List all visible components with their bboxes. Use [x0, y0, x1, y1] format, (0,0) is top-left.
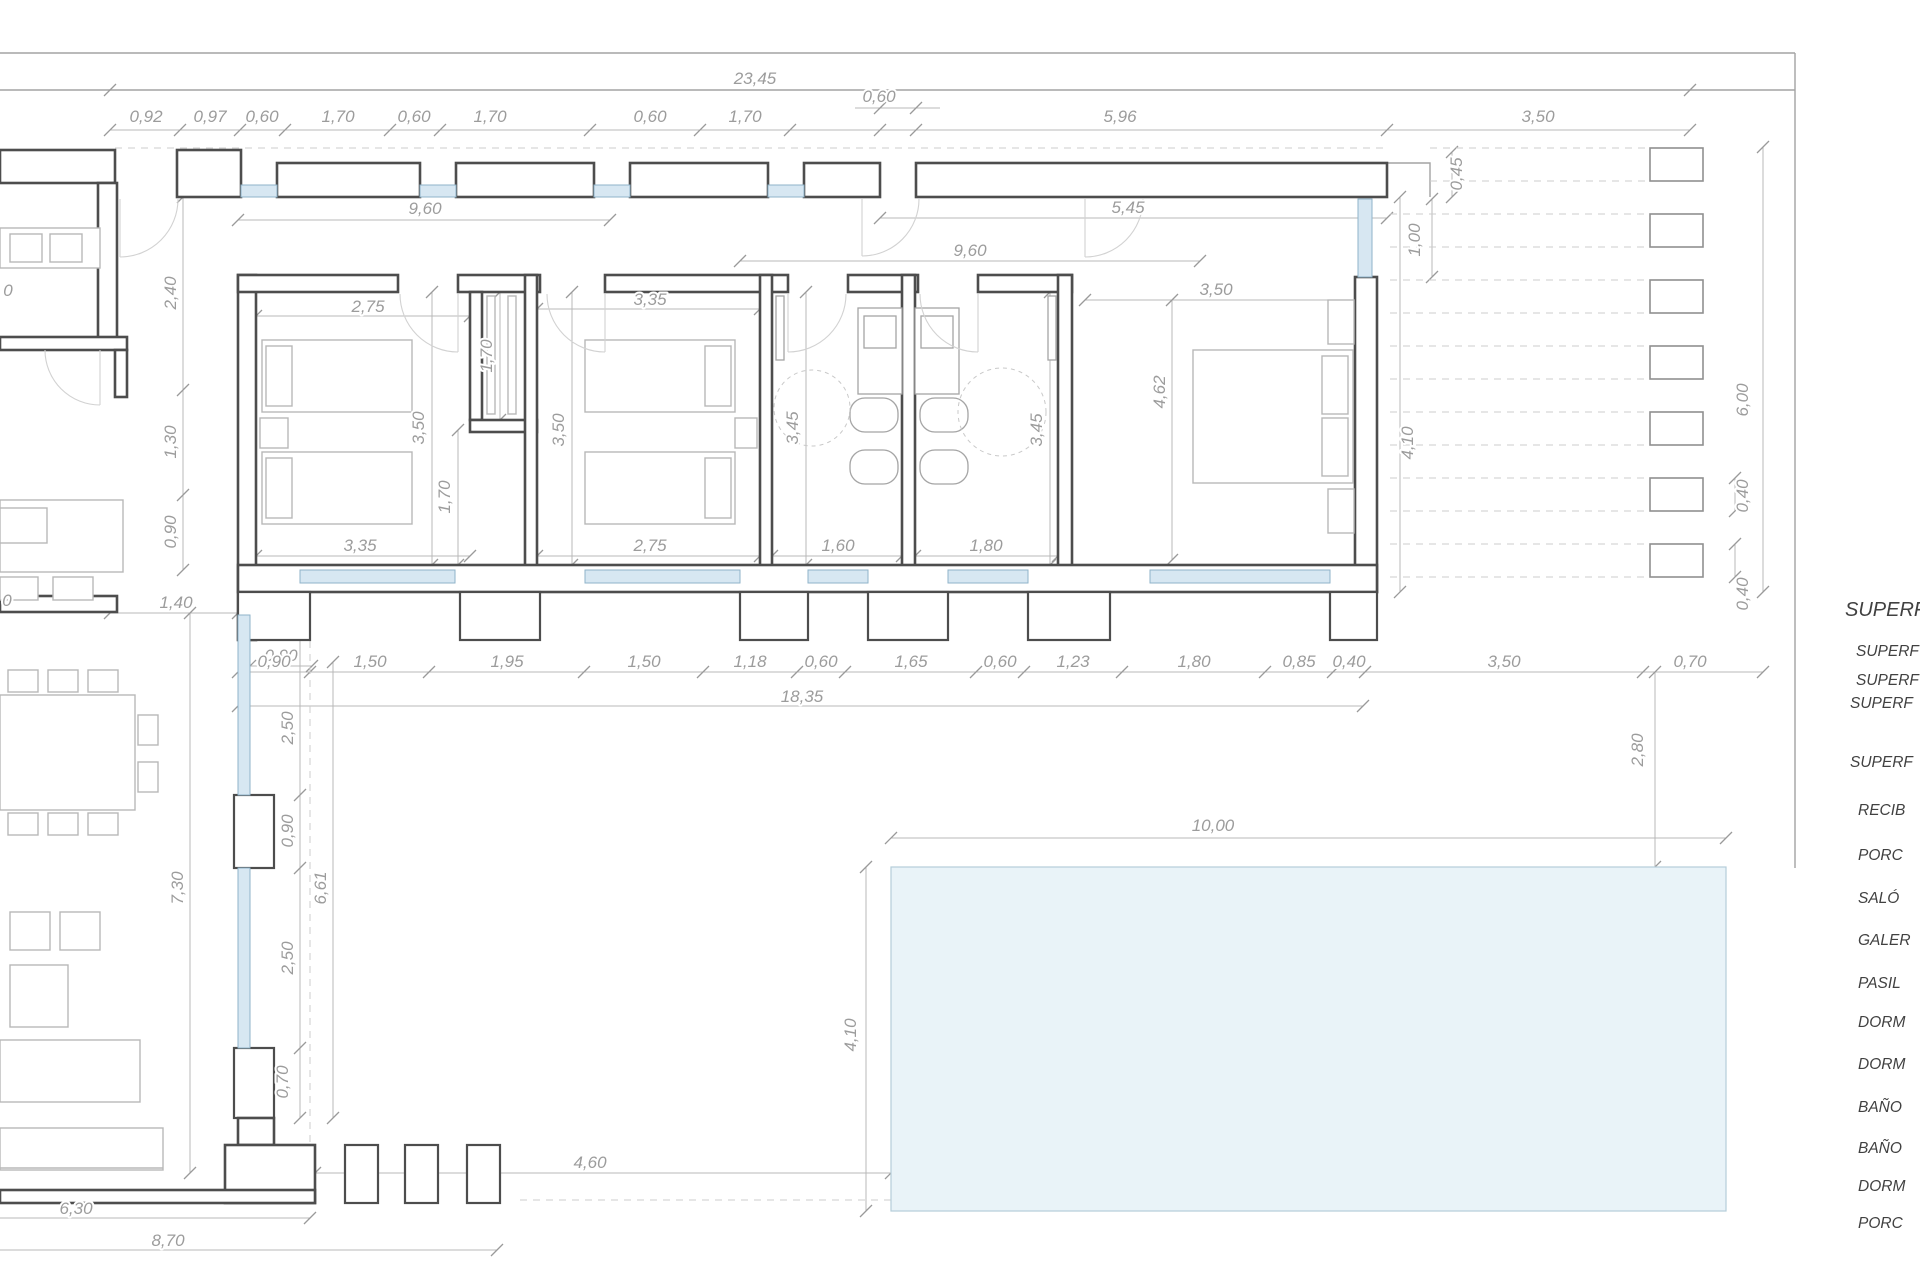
- legend-item: PORC: [1858, 847, 1904, 864]
- dim-label: 0,85: [1282, 652, 1316, 671]
- dim-label: 2,40: [161, 276, 180, 311]
- dim-label: 0,60: [397, 107, 431, 126]
- dim-label: 0,90: [161, 515, 180, 549]
- legend-item: DORM: [1858, 1014, 1905, 1031]
- dim-label: 1,70: [321, 107, 355, 126]
- dim-label: 4,10: [1398, 426, 1417, 460]
- dim-label: 1,30: [161, 425, 180, 459]
- dim-label: 3,50: [1199, 280, 1233, 299]
- dim-label: 0,60: [245, 107, 279, 126]
- dim-label: 1,70: [435, 480, 454, 514]
- dim-label: 1,80: [1177, 652, 1211, 671]
- dim-label: 4,62: [1150, 375, 1169, 409]
- dim-label: 2,80: [1628, 733, 1647, 768]
- dim-label: 6,61: [311, 871, 330, 904]
- legend-item: BAÑO: [1858, 1099, 1902, 1116]
- dim-label: 3,50: [549, 413, 568, 447]
- dim-label: 1,70: [728, 107, 762, 126]
- dim-label: 1,50: [627, 652, 661, 671]
- dim-label: 1,60: [821, 536, 855, 555]
- dim-label-cut: 0: [3, 281, 13, 300]
- dim-label: 6,00: [1733, 383, 1752, 417]
- dim-label: 3,45: [1027, 413, 1046, 447]
- dim-label: 1,70: [477, 339, 496, 373]
- dim-label: 8,70: [151, 1231, 185, 1250]
- dim-label: 1,70: [473, 107, 507, 126]
- dim-label: 1,00: [1405, 223, 1424, 257]
- legend-header: SUPERF: [1845, 599, 1920, 621]
- legend-item: GALER: [1858, 932, 1911, 949]
- legend-item: SUPERF: [1850, 754, 1914, 771]
- dim-label: 2,50: [278, 941, 297, 976]
- legend-item: SUPERF: [1850, 695, 1914, 712]
- dim-label: 3,50: [409, 411, 428, 445]
- dim-label: 5,45: [1111, 198, 1145, 217]
- legend-item: SUPERF: [1856, 643, 1920, 660]
- dim-label: 0,70: [1673, 652, 1707, 671]
- floor-plan-page: 23,45 0,60 0,92 0,97 0,60 1,70 0,60 1,70…: [0, 0, 1920, 1280]
- dim-label: 1,80: [969, 536, 1003, 555]
- legend-item: SALÓ: [1858, 890, 1899, 907]
- dim-label: 0,97: [193, 107, 227, 126]
- dim-label: 3,50: [1487, 652, 1521, 671]
- dim-label-cut: 0: [2, 591, 12, 610]
- dim-label: 0,90: [257, 652, 291, 671]
- dim-label: 1,23: [1056, 652, 1090, 671]
- dim-label: 0,92: [129, 107, 163, 126]
- legend-item: DORM: [1858, 1056, 1905, 1073]
- pergola-posts: [1650, 148, 1703, 577]
- dim-label: 2,75: [632, 536, 667, 555]
- dim-label: 3,45: [783, 411, 802, 445]
- dim-label: 9,60: [953, 241, 987, 260]
- dim-label: 0,70: [273, 1065, 292, 1099]
- dim-label: 1,65: [894, 652, 928, 671]
- dim-label: 23,45: [733, 69, 777, 88]
- legend-item: SUPERF: [1856, 672, 1920, 689]
- dim-label: 4,10: [841, 1018, 860, 1052]
- dim-label: 0,90: [278, 814, 297, 848]
- legend-item: DORM: [1858, 1178, 1905, 1195]
- dim-label: 0,60: [983, 652, 1017, 671]
- dim-label: 1,18: [733, 652, 767, 671]
- dim-label: 0,45: [1447, 157, 1466, 191]
- swimming-pool: [891, 867, 1726, 1211]
- floor-plan-drawing: 23,45 0,60 0,92 0,97 0,60 1,70 0,60 1,70…: [0, 0, 1920, 1280]
- dim-label: 18,35: [781, 687, 824, 706]
- dim-label: 1,40: [159, 593, 193, 612]
- dim-label: 0,40: [1332, 652, 1366, 671]
- dim-label: 0,40: [1733, 479, 1752, 513]
- dim-label: 3,35: [343, 536, 377, 555]
- dim-label: 0,60: [804, 652, 838, 671]
- dim-label: 4,60: [573, 1153, 607, 1172]
- legend-item: BAÑO: [1858, 1140, 1902, 1157]
- dim-label: 1,50: [353, 652, 387, 671]
- dim-label: 2,75: [350, 297, 385, 316]
- dim-label: 2,50: [278, 711, 297, 746]
- dim-label: 10,00: [1192, 816, 1235, 835]
- area-legend: SUPERF SUPERF SUPERF SUPERF SUPERF RECIB…: [1845, 599, 1920, 1232]
- legend-item: PASIL: [1858, 975, 1901, 992]
- dim-label: 5,96: [1103, 107, 1137, 126]
- dim-label: 0,40: [1733, 577, 1752, 611]
- dim-label: 6,30: [59, 1199, 93, 1218]
- legend-item: RECIB: [1858, 802, 1905, 819]
- dim-label: 0,60: [862, 87, 896, 106]
- dim-label: 0,60: [633, 107, 667, 126]
- dim-label: 7,30: [168, 871, 187, 905]
- dim-label: 1,95: [490, 652, 524, 671]
- dim-label: 3,50: [1521, 107, 1555, 126]
- dim-label: 9,60: [408, 199, 442, 218]
- dim-label: 3,35: [633, 290, 667, 309]
- legend-item: PORC: [1858, 1215, 1904, 1232]
